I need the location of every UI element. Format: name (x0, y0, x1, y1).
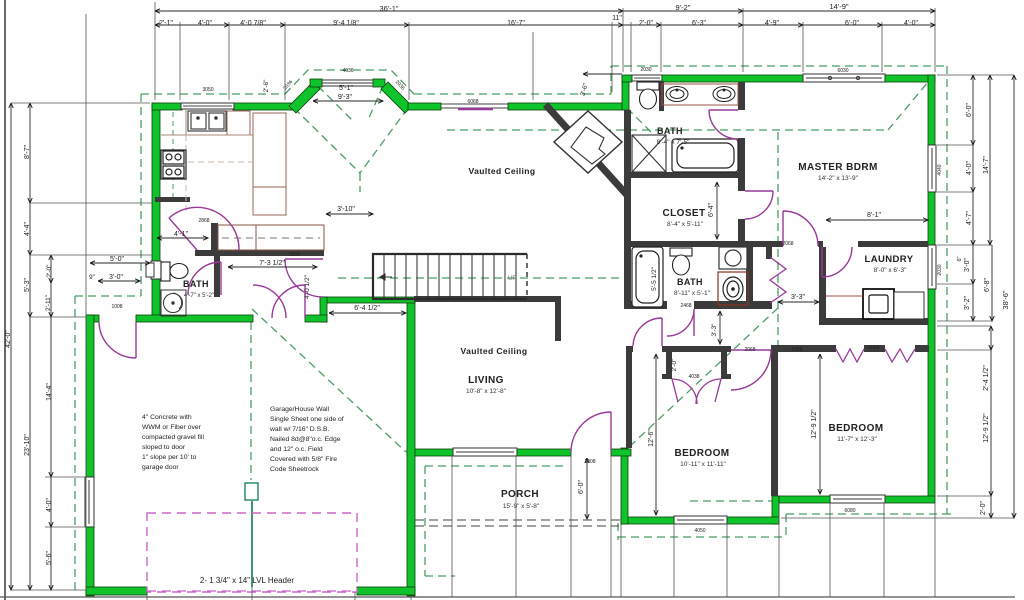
svg-text:3'-2": 3'-2" (964, 296, 971, 310)
svg-text:BATH: BATH (183, 279, 209, 289)
svg-text:2'-11": 2'-11" (45, 294, 52, 311)
svg-text:compacted gravel fill: compacted gravel fill (142, 434, 204, 441)
svg-text:3'-3": 3'-3" (791, 294, 805, 301)
svg-text:14'-2" x 13'-9": 14'-2" x 13'-9" (818, 175, 859, 182)
svg-text:2868: 2868 (198, 218, 209, 224)
svg-text:5'-3": 5'-3" (24, 278, 31, 292)
svg-text:4'-0": 4'-0" (198, 20, 212, 27)
svg-text:8'-4" x 7'-5": 8'-4" x 7'-5" (657, 139, 690, 146)
svg-text:4038: 4038 (688, 374, 699, 380)
svg-text:2'-0": 2'-0" (639, 20, 653, 27)
svg-text:5'-5 1/2": 5'-5 1/2" (651, 266, 658, 290)
svg-text:12'-6": 12'-6" (648, 429, 655, 447)
svg-text:4'-0": 4'-0" (966, 161, 973, 175)
svg-text:BEDROOM: BEDROOM (674, 448, 729, 459)
svg-text:9'-3": 9'-3" (338, 94, 352, 101)
svg-text:Code Sheetrock: Code Sheetrock (270, 466, 319, 473)
svg-text:2068: 2068 (782, 241, 793, 247)
svg-text:3050: 3050 (202, 87, 213, 93)
svg-text:4'-0 7/8": 4'-0 7/8" (240, 20, 266, 27)
svg-text:2030: 2030 (937, 264, 943, 275)
svg-text:4'-7": 4'-7" (966, 211, 973, 225)
svg-text:1008: 1008 (111, 304, 122, 310)
svg-text:1" slope per 10' to: 1" slope per 10' to (142, 454, 197, 461)
svg-text:4050: 4050 (694, 528, 705, 534)
svg-text:2030: 2030 (640, 67, 651, 73)
svg-text:BATH: BATH (677, 277, 703, 287)
svg-text:6068: 6068 (868, 345, 879, 351)
svg-text:23'-10": 23'-10" (24, 434, 31, 456)
svg-text:4'-1": 4'-1" (174, 231, 188, 238)
svg-text:6'-4": 6'-4" (708, 203, 715, 217)
svg-text:9": 9" (89, 274, 96, 281)
svg-text:4'-4": 4'-4" (24, 222, 31, 236)
svg-text:Covered with 5/8" Fire: Covered with 5/8" Fire (270, 456, 337, 463)
svg-text:4040: 4040 (937, 164, 943, 175)
svg-text:6'-8": 6'-8" (984, 278, 991, 292)
svg-text:6'-0": 6'-0" (845, 20, 859, 27)
svg-text:garage door: garage door (142, 464, 179, 471)
svg-text:7'-3 1/2": 7'-3 1/2" (259, 260, 285, 267)
svg-text:11": 11" (612, 15, 622, 22)
svg-text:MASTER BDRM: MASTER BDRM (798, 162, 877, 173)
svg-text:4'-0 1/2": 4'-0 1/2" (304, 274, 311, 298)
svg-text:2'-4 1/2": 2'-4 1/2" (983, 365, 990, 391)
svg-text:3'-3": 3'-3" (711, 323, 718, 337)
svg-text:2'-1": 2'-1" (159, 20, 173, 27)
svg-text:15'-9" x 5'-8": 15'-9" x 5'-8" (503, 503, 540, 510)
svg-text:5'-1": 5'-1" (339, 85, 353, 92)
svg-text:3'-0": 3'-0" (964, 258, 971, 272)
svg-text:1008: 1008 (584, 459, 595, 465)
svg-text:Single Sheet one side of: Single Sheet one side of (270, 416, 344, 423)
svg-text:Nailed 8d@8"o.c. Edge: Nailed 8d@8"o.c. Edge (270, 436, 341, 443)
svg-text:4'-7" x 5'-2": 4'-7" x 5'-2" (184, 293, 214, 299)
svg-text:2'-0": 2'-0" (980, 501, 987, 515)
svg-text:4'-9": 4'-9" (765, 20, 779, 27)
svg-text:2'-6": 2'-6" (263, 79, 270, 93)
svg-text:6030: 6030 (837, 68, 848, 74)
svg-text:BEDROOM: BEDROOM (828, 423, 883, 434)
svg-text:14'-7": 14'-7" (983, 156, 990, 174)
svg-text:11'-7" x 12'-3": 11'-7" x 12'-3" (837, 436, 877, 443)
svg-text:10'-8" x 12'-8": 10'-8" x 12'-8" (466, 388, 507, 395)
svg-text:6": 6" (957, 256, 963, 261)
svg-text:36'-1": 36'-1" (379, 4, 398, 13)
svg-text:9'-2": 9'-2" (676, 3, 691, 12)
svg-text:16'-7": 16'-7" (507, 20, 525, 27)
svg-text:6'-0": 6'-0" (966, 103, 973, 117)
svg-text:BATH: BATH (657, 126, 683, 136)
svg-text:6068: 6068 (467, 99, 478, 105)
svg-text:WWM or Fiber over: WWM or Fiber over (142, 424, 202, 431)
svg-text:9'-4 1/8": 9'-4 1/8" (333, 20, 359, 27)
svg-text:2068: 2068 (791, 347, 802, 353)
svg-text:6080: 6080 (844, 508, 855, 514)
svg-text:42'-0": 42'-0" (5, 330, 12, 348)
svg-text:PORCH: PORCH (501, 489, 539, 500)
svg-text:Vaulted Ceiling: Vaulted Ceiling (469, 166, 536, 176)
svg-text:8'-7": 8'-7" (24, 145, 31, 159)
svg-text:10'-11" x 11'-11": 10'-11" x 11'-11" (680, 461, 726, 468)
svg-text:5'-0": 5'-0" (110, 256, 124, 263)
svg-text:8'-4" x 5'-11": 8'-4" x 5'-11" (667, 221, 704, 228)
svg-text:2'-0": 2'-0" (671, 358, 678, 372)
svg-text:38'-6": 38'-6" (1001, 290, 1010, 309)
svg-text:2- 1 3/4" x 14" LVL Header: 2- 1 3/4" x 14" LVL Header (200, 576, 295, 585)
svg-text:2068: 2068 (744, 347, 755, 353)
svg-text:wall w/ 7/16" D.S.B.: wall w/ 7/16" D.S.B. (269, 426, 330, 433)
svg-text:Vaulted Ceiling: Vaulted Ceiling (461, 346, 528, 356)
svg-text:sloped to door: sloped to door (142, 444, 186, 451)
svg-text:and 12" o.c. Field: and 12" o.c. Field (270, 446, 323, 453)
svg-text:LIVING: LIVING (468, 375, 504, 386)
svg-text:2468: 2468 (680, 303, 691, 309)
svg-text:6'-4 1/2": 6'-4 1/2" (354, 305, 380, 312)
svg-text:12'-9 1/2": 12'-9 1/2" (811, 409, 818, 439)
svg-text:4'-0": 4'-0" (46, 498, 53, 512)
svg-text:8'-11" x 5'-1": 8'-11" x 5'-1" (674, 290, 711, 297)
svg-text:LAUNDRY: LAUNDRY (865, 254, 914, 265)
svg-text:Garage/House Wall: Garage/House Wall (270, 406, 330, 413)
svg-text:4'-0": 4'-0" (904, 20, 918, 27)
svg-text:14'-4": 14'-4" (46, 383, 53, 401)
svg-text:6'-3": 6'-3" (692, 20, 706, 27)
svg-text:3'-10": 3'-10" (337, 206, 355, 213)
svg-text:2'-0": 2'-0" (46, 264, 53, 278)
svg-text:5'-6": 5'-6" (46, 551, 53, 565)
svg-text:12'-9 1/2": 12'-9 1/2" (983, 413, 990, 443)
svg-text:CLOSET: CLOSET (663, 208, 706, 219)
svg-text:14'-9": 14'-9" (829, 2, 848, 11)
svg-text:4" Concrete with: 4" Concrete with (142, 414, 192, 421)
svg-text:2868: 2868 (288, 252, 299, 258)
svg-text:8'-0" x 6'-3": 8'-0" x 6'-3" (874, 267, 907, 274)
svg-text:8'-1": 8'-1" (867, 212, 881, 219)
svg-text:6'-0": 6'-0" (578, 480, 585, 494)
svg-text:UP: UP (508, 276, 516, 282)
svg-text:4036: 4036 (342, 68, 353, 74)
svg-text:3'-0": 3'-0" (109, 274, 123, 281)
